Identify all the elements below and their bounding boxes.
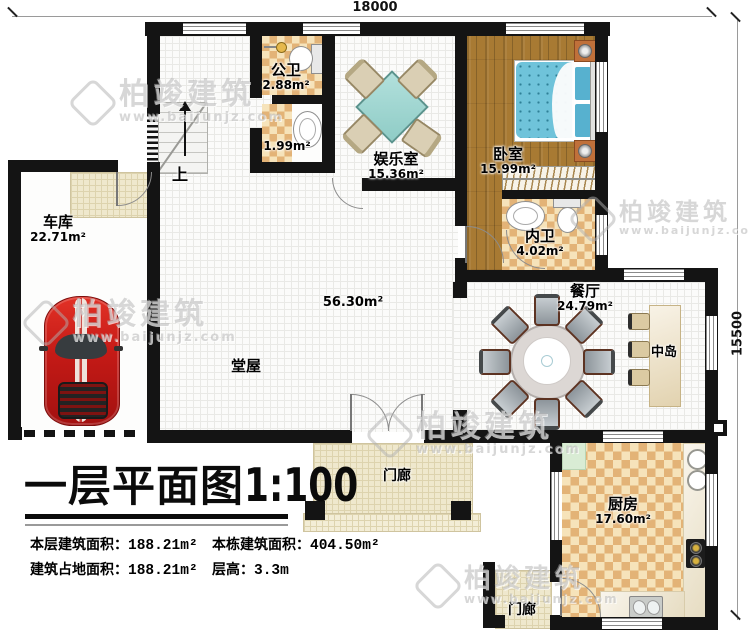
dining-chair bbox=[479, 349, 511, 375]
window bbox=[595, 215, 608, 255]
room-name: 餐厅 bbox=[545, 283, 625, 300]
window bbox=[602, 617, 662, 630]
room-name: 厨房 bbox=[583, 496, 663, 513]
room-area: 2.88m² bbox=[250, 79, 322, 93]
stat-label: 建筑占地面积： bbox=[30, 562, 128, 578]
stat-label: 本栋建筑面积： bbox=[212, 537, 310, 553]
window bbox=[595, 62, 608, 132]
lamp bbox=[578, 144, 592, 158]
stat-total-area: 本栋建筑面积：404.50m² bbox=[212, 534, 380, 554]
wall bbox=[147, 162, 160, 443]
stairs-up-arrowhead bbox=[179, 101, 191, 111]
room-label-public-bath: 公卫 2.88m² bbox=[250, 62, 322, 93]
plan-title-scale: 1:100 bbox=[244, 458, 358, 512]
room-label-hall: 堂屋 bbox=[216, 358, 276, 375]
watermark-logo-icon bbox=[413, 561, 464, 612]
sink-basin bbox=[645, 598, 662, 617]
wall bbox=[453, 410, 467, 433]
room-area-hall: 56.30m² bbox=[320, 296, 386, 311]
porch-column bbox=[451, 501, 471, 520]
window bbox=[603, 430, 663, 443]
stairs-up-arrow bbox=[184, 110, 186, 156]
car-mirror-right bbox=[114, 346, 123, 351]
wall bbox=[455, 270, 608, 282]
car-mirror-left bbox=[39, 346, 48, 351]
room-label-dining: 餐厅 24.79m² bbox=[545, 283, 625, 314]
burner bbox=[690, 542, 702, 554]
ensuite-basin-inner bbox=[513, 207, 538, 225]
window bbox=[303, 22, 360, 36]
title-underline-thick bbox=[25, 514, 288, 519]
door-leaf bbox=[350, 394, 352, 431]
wall bbox=[8, 160, 21, 440]
pilaster-inner bbox=[714, 424, 723, 432]
stat-value: 188.21m² bbox=[128, 538, 198, 554]
stat-value: 188.21m² bbox=[128, 563, 198, 579]
burner bbox=[690, 555, 702, 567]
door-leaf bbox=[560, 578, 562, 616]
door-leaf bbox=[465, 226, 467, 263]
bar-stool bbox=[628, 313, 650, 330]
car-windshield bbox=[55, 334, 107, 359]
room-label-wash: 1.99m² bbox=[252, 140, 322, 154]
dimension-width: 18000 bbox=[340, 0, 410, 15]
wall bbox=[455, 36, 467, 226]
wash-basin-inner bbox=[299, 118, 316, 141]
wall bbox=[550, 430, 562, 472]
stat-label: 层高： bbox=[212, 562, 254, 578]
floor-drain bbox=[276, 42, 287, 53]
window bbox=[624, 268, 684, 282]
bar-stool bbox=[628, 369, 650, 386]
nightstand bbox=[574, 140, 597, 162]
room-area: 24.79m² bbox=[545, 300, 625, 314]
room-label-back-porch: 门廊 bbox=[500, 602, 544, 618]
window bbox=[705, 474, 718, 546]
dimension-line-top bbox=[12, 16, 712, 17]
room-area: 4.02m² bbox=[500, 245, 580, 259]
wall bbox=[705, 546, 718, 630]
bar-stool bbox=[628, 341, 650, 358]
sink-basin bbox=[631, 598, 648, 617]
wall bbox=[147, 430, 352, 443]
wall bbox=[8, 427, 22, 440]
room-label-kitchen: 厨房 17.60m² bbox=[583, 496, 663, 527]
wall bbox=[466, 430, 603, 443]
wall bbox=[550, 540, 562, 582]
wall bbox=[8, 160, 118, 172]
stove bbox=[686, 539, 705, 568]
room-name: 卧室 bbox=[468, 146, 548, 163]
nightstand bbox=[574, 40, 597, 62]
room-name: 内卫 bbox=[500, 228, 580, 245]
room-label-garage: 车库 22.71m² bbox=[18, 214, 98, 245]
room-area: 15.36m² bbox=[356, 168, 436, 182]
info-table: 本层建筑面积：188.21m² 本栋建筑面积：404.50m² 建筑占地面积：1… bbox=[30, 534, 380, 579]
dimension-tick bbox=[730, 610, 741, 621]
wall bbox=[453, 282, 467, 298]
watermark-brand: 柏竣建筑 bbox=[619, 200, 750, 224]
window bbox=[183, 22, 246, 36]
room-name: 公卫 bbox=[250, 62, 322, 79]
room-label-entertainment: 娱乐室 15.36m² bbox=[356, 151, 436, 182]
wall-hatch bbox=[147, 114, 158, 162]
room-name: 车库 bbox=[18, 214, 98, 231]
stat-value: 404.50m² bbox=[310, 538, 380, 554]
plan-title: 一层平面图1:100 bbox=[24, 452, 390, 514]
wall bbox=[502, 190, 595, 199]
dining-chair bbox=[583, 349, 615, 375]
dimension-height: 15500 bbox=[731, 309, 746, 359]
wall bbox=[147, 22, 160, 114]
room-area: 17.60m² bbox=[583, 513, 663, 527]
lamp bbox=[578, 44, 592, 58]
stat-footprint-area: 建筑占地面积：188.21m² bbox=[30, 559, 212, 579]
plan-title-text: 一层平面图 bbox=[24, 452, 244, 514]
stat-floor-area: 本层建筑面积：188.21m² bbox=[30, 534, 212, 554]
dining-chair bbox=[534, 398, 560, 430]
room-area: 15.99m² bbox=[468, 163, 548, 177]
window bbox=[506, 22, 584, 36]
wall bbox=[550, 617, 602, 630]
drain-pipe bbox=[264, 46, 276, 48]
window bbox=[705, 316, 718, 370]
watermark-url: www.baijunjz.com bbox=[619, 224, 750, 237]
room-area: 22.71m² bbox=[18, 231, 98, 245]
window bbox=[550, 472, 562, 540]
room-label-inner-bath: 内卫 4.02m² bbox=[500, 228, 580, 259]
stat-floor-height: 层高：3.3m bbox=[212, 559, 380, 579]
wardrobe-rail bbox=[503, 178, 596, 180]
car bbox=[44, 296, 118, 424]
car-engine-cover bbox=[58, 382, 108, 419]
title-underline-thin bbox=[25, 524, 288, 526]
wall bbox=[705, 432, 718, 474]
kitchen-sink bbox=[629, 596, 663, 618]
fridge-mat bbox=[562, 441, 586, 470]
stat-value: 3.3m bbox=[254, 563, 289, 579]
wall bbox=[608, 268, 624, 282]
garage-door-dashed bbox=[24, 430, 140, 437]
floor-plan: 18000 15500 bbox=[0, 0, 750, 638]
door-leaf bbox=[421, 394, 423, 431]
room-name: 娱乐室 bbox=[356, 151, 436, 168]
stairs-up-label: 上 bbox=[166, 166, 194, 184]
room-label-island: 中岛 bbox=[648, 346, 680, 361]
watermark-logo-icon bbox=[68, 77, 119, 128]
door-leaf bbox=[116, 172, 118, 206]
dimension-tick bbox=[730, 12, 741, 23]
dining-table-center bbox=[541, 355, 553, 367]
room-label-bedroom: 卧室 15.99m² bbox=[468, 146, 548, 177]
stat-label: 本层建筑面积： bbox=[30, 537, 128, 553]
wall bbox=[322, 28, 335, 173]
